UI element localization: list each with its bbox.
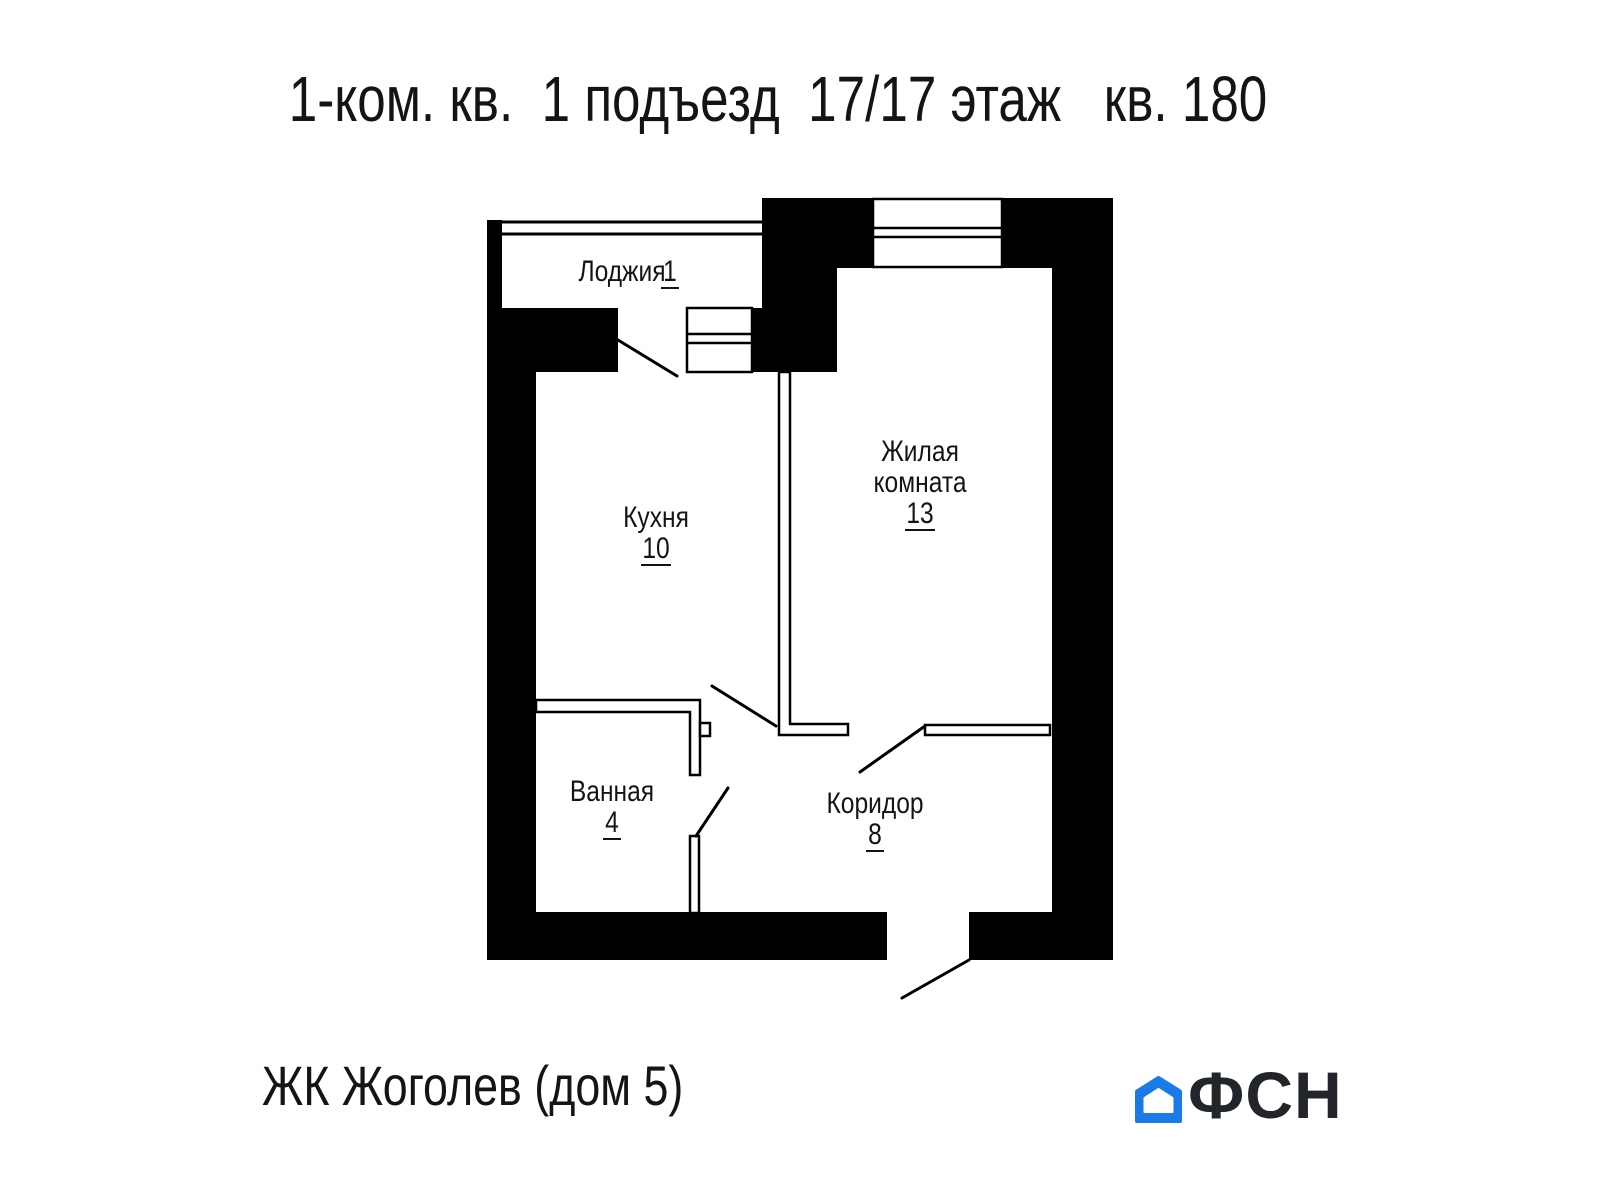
wall-living-bottom [925,725,1050,735]
wall-plumbing-stub [700,723,710,736]
outer-walls [487,198,1113,960]
wall-left [487,308,536,912]
door-living-leaf [860,726,925,772]
logo-text: ФСН [1188,1062,1343,1128]
room-area-loggia: 1 [663,254,677,288]
wall-right [1052,198,1113,960]
wall-bathroom-stub [690,836,699,913]
room-label-living-1: Жилая [881,434,959,468]
room-label-living-2: комната [874,465,968,499]
wall-top-right-corner [1002,198,1052,268]
room-label-kitchen: Кухня [623,500,689,534]
house-icon [1135,1076,1182,1123]
room-area-kitchen: 10 [642,531,669,565]
floor-plan: Лоджия 1 Кухня 10 Жилая комната 13 Ванна… [0,0,1600,1200]
wall-center-pier-step [752,308,762,372]
room-label-corridor: Коридор [826,786,923,820]
wall-bottom-left [487,912,887,960]
floor-plan-page: { "title": "1-ком. кв. 1 подъезд 17/17 э… [0,0,1600,1200]
room-area-corridor: 8 [868,817,882,851]
window-living-room [873,199,1002,267]
window-kitchen-loggia [687,308,752,372]
room-label-loggia: Лоджия [578,254,665,288]
window-frame [873,199,1002,267]
door-bathroom-leaf [696,788,728,836]
room-label-bathroom: Ванная [570,774,654,808]
door-kitchen-leaf [712,686,776,726]
window-frame [687,308,752,372]
door-balcony-leaf [618,340,677,376]
room-area-bathroom: 4 [605,805,619,839]
wall-bathroom-top-right [536,700,700,775]
project-name: ЖК Жоголев (дом 5) [262,1058,683,1114]
wall-kitchen-living [779,372,848,735]
wall-center-pier [762,198,837,372]
wall-top-mid [837,198,873,268]
developer-logo: ФСН [1135,1062,1355,1142]
room-area-living: 13 [906,496,933,530]
door-entrance-leaf [902,960,969,998]
wall-loggia-left-thin [487,220,502,308]
loggia-glazing [487,222,762,234]
